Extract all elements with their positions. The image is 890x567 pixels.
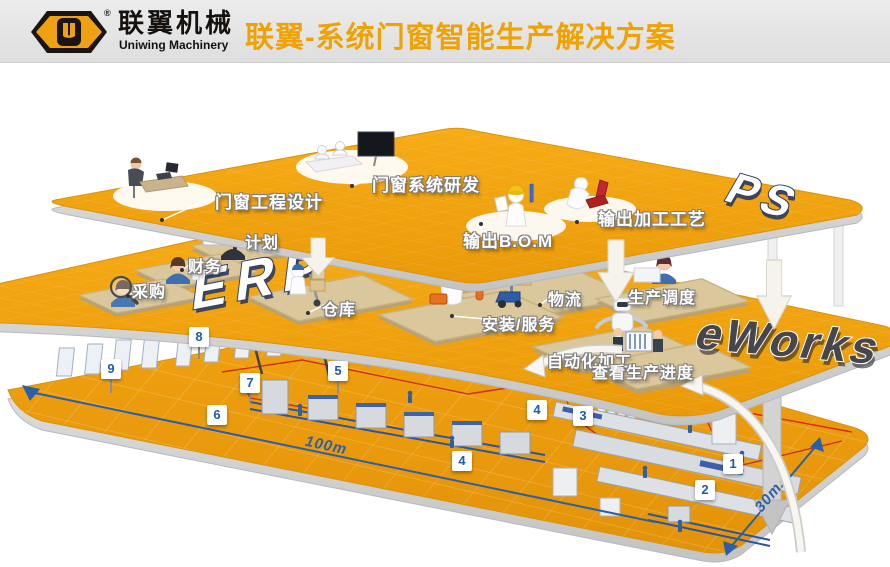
station-label-dispatch: 生产调度 [628, 284, 696, 308]
station-label-output-process: 输出加工工艺 [598, 205, 706, 230]
floor-marker-8: 8 [189, 327, 209, 347]
station-label-window-design: 门窗工程设计 [215, 188, 323, 213]
station-label-planning: 计划 [245, 229, 279, 253]
floor-marker-1: 1 [723, 454, 743, 474]
station-label-window-rnd: 门窗系统研发 [372, 171, 480, 196]
floor-marker-9: 9 [101, 359, 121, 379]
page-title: 联翼-系统门窗智能生产解决方案 [245, 14, 676, 56]
floor-marker-4b: 4 [527, 400, 547, 420]
station-label-logistics: 物流 [548, 286, 582, 310]
station-label-install-service: 安装/服务 [482, 311, 555, 335]
station-label-finance: 财务 [188, 253, 222, 277]
floor-marker-7: 7 [240, 373, 260, 393]
registered-mark: ® [104, 8, 111, 18]
brand-name-en: Uniwing Machinery [119, 38, 228, 52]
station-label-output-bom: 输出B.O.M [463, 227, 553, 252]
floor-marker-5: 5 [328, 361, 348, 381]
floor-marker-4a: 4 [452, 451, 472, 471]
station-label-procurement: 采购 [132, 278, 166, 302]
header-bar: ® 联翼机械 Uniwing Machinery 联翼-系统门窗智能生产解决方案 [0, 0, 890, 63]
floor-marker-3: 3 [573, 406, 593, 426]
uniwing-logo-icon: ® [28, 7, 112, 57]
station-label-warehouse: 仓库 [322, 296, 356, 320]
floor-marker-2: 2 [695, 480, 715, 500]
floor-marker-6: 6 [207, 405, 227, 425]
brand-name: 联翼机械 [118, 9, 234, 37]
infographic-poster: ERP ERP eWorks eWorks [0, 0, 890, 567]
station-label-progress: 查看生产进度 [592, 359, 694, 383]
